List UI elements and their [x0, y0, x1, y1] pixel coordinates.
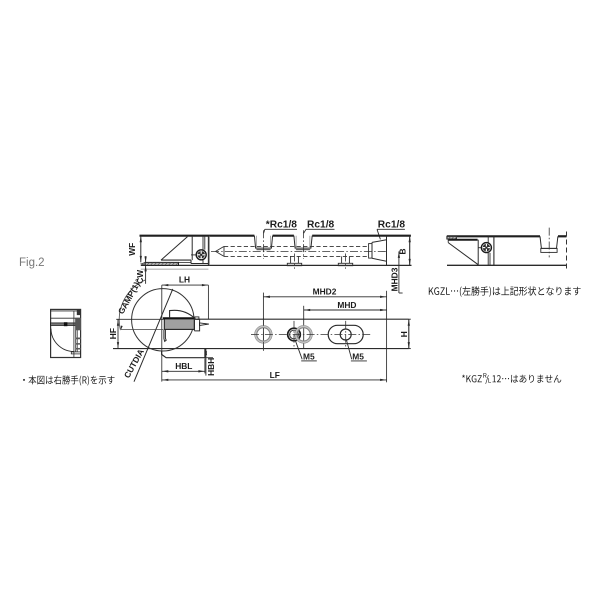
- svg-text:MHD2: MHD2: [313, 287, 337, 297]
- svg-text:LH: LH: [179, 275, 190, 285]
- svg-text:Fig.2: Fig.2: [19, 257, 45, 269]
- svg-text:Rc1/8: Rc1/8: [378, 219, 406, 230]
- svg-text:*Rc1/8: *Rc1/8: [266, 219, 297, 230]
- svg-text:MHD3: MHD3: [390, 267, 400, 291]
- svg-text:HF: HF: [108, 328, 118, 339]
- svg-text:WF: WF: [127, 243, 137, 256]
- svg-text:M5: M5: [303, 351, 315, 361]
- svg-text:LF: LF: [270, 370, 280, 380]
- svg-text:H: H: [399, 331, 409, 337]
- svg-text:Rc1/8: Rc1/8: [307, 219, 335, 230]
- svg-text:HBL: HBL: [175, 361, 192, 371]
- svg-text:HBH: HBH: [206, 358, 216, 376]
- svg-text:MHD: MHD: [337, 300, 356, 310]
- svg-text:M5: M5: [352, 351, 364, 361]
